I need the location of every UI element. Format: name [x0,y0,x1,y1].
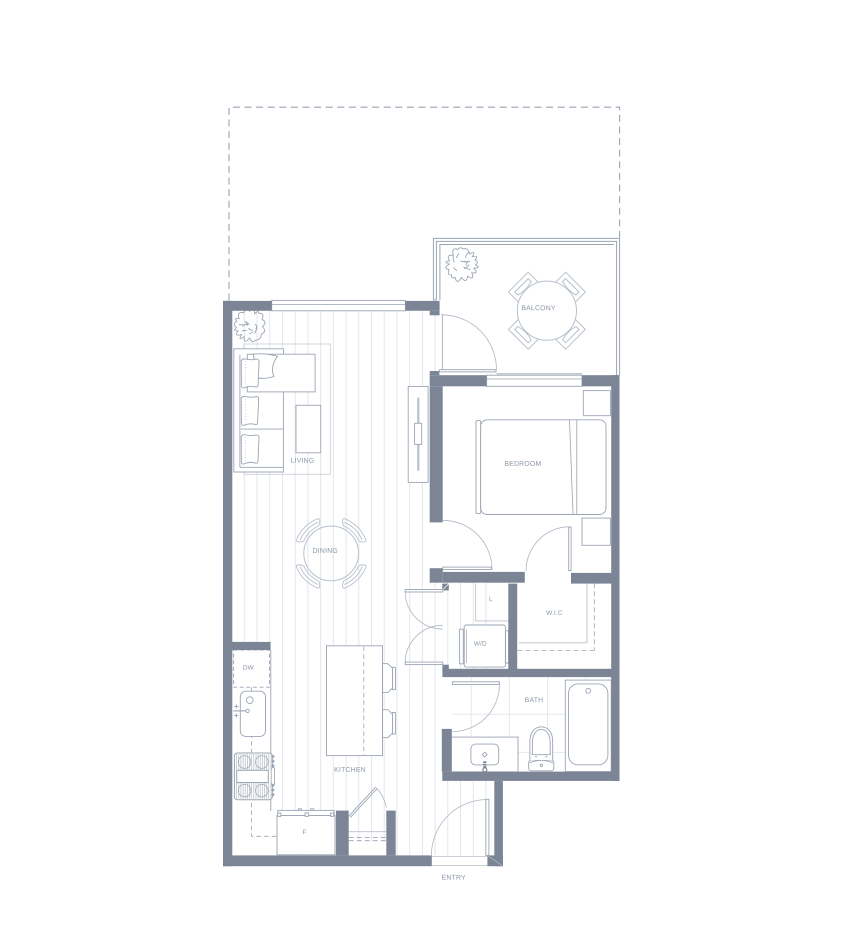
svg-text:LIVING: LIVING [291,458,315,465]
svg-text:KITCHEN: KITCHEN [334,767,366,774]
svg-text:BEDROOM: BEDROOM [504,461,541,468]
svg-text:W.I.C: W.I.C [546,610,563,617]
svg-text:BALCONY: BALCONY [521,305,556,312]
svg-text:DINING: DINING [313,548,338,555]
svg-text:ENTRY: ENTRY [442,875,466,882]
svg-text:F: F [302,829,306,836]
svg-text:W/D: W/D [474,641,487,648]
svg-text:DW: DW [243,665,255,672]
svg-text:L: L [489,596,493,603]
svg-text:BATH: BATH [525,697,544,704]
